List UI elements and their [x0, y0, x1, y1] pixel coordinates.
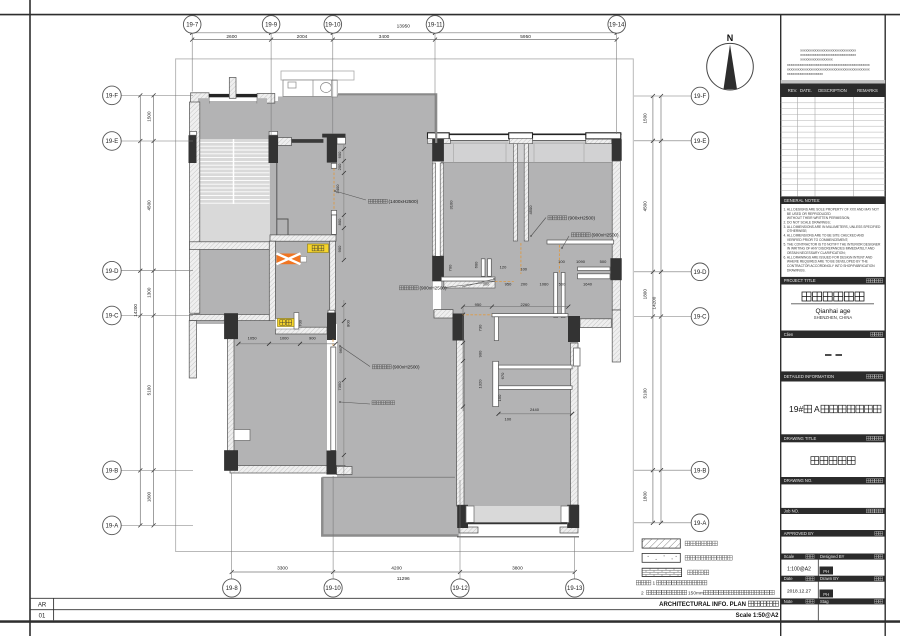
svg-text:Scale: Scale	[784, 554, 795, 559]
svg-text:(900xH2500): (900xH2500)	[420, 286, 448, 291]
svg-text:19-B: 19-B	[694, 468, 707, 474]
svg-text:800: 800	[345, 319, 350, 326]
svg-text:3800: 3800	[512, 566, 523, 572]
svg-text:19-C: 19-C	[105, 314, 119, 320]
svg-text:13950: 13950	[397, 24, 411, 30]
svg-text:WHERE REQUIRED ARE TO BE DEVEL: WHERE REQUIRED ARE TO BE DEVELOPED BY TH…	[787, 260, 869, 264]
svg-text:DRAWINGS.: DRAWINGS.	[787, 268, 806, 272]
svg-text:670: 670	[500, 372, 505, 379]
svg-text:OTHERWISE;: OTHERWISE;	[787, 229, 808, 233]
svg-text:Stag: Stag	[820, 599, 829, 604]
svg-text:11296: 11296	[397, 576, 410, 582]
svg-text:1500: 1500	[643, 113, 648, 124]
svg-text:2004: 2004	[297, 34, 308, 40]
svg-text:900: 900	[337, 245, 342, 252]
svg-text:19-11: 19-11	[428, 23, 444, 29]
svg-text:19-E: 19-E	[694, 139, 707, 145]
svg-text:Designed BY: Designed BY	[820, 554, 845, 559]
svg-text:2. DO NOT SCALE DRAWINGS;: 2. DO NOT SCALE DRAWINGS;	[784, 221, 831, 225]
svg-text:2440: 2440	[530, 407, 540, 412]
svg-text:500: 500	[559, 282, 566, 287]
svg-text:5100: 5100	[146, 385, 151, 396]
svg-text:(900xH2500): (900xH2500)	[568, 216, 596, 221]
svg-text:19-F: 19-F	[106, 94, 119, 100]
svg-text:SHENZHEN, CHINA: SHENZHEN, CHINA	[814, 315, 853, 320]
svg-text:500: 500	[600, 259, 607, 264]
svg-text:xxxxxxxxxxxxxxxxxxxxxxxxxxxxxx: xxxxxxxxxxxxxxxxxxxxxxxxxxxxxxxxxxxxxxxx…	[787, 63, 870, 67]
svg-text:(900xH2500): (900xH2500)	[592, 233, 620, 238]
svg-text:4500: 4500	[146, 200, 151, 211]
svg-text:900: 900	[309, 336, 316, 341]
svg-text:Scale 1:50@A2: Scale 1:50@A2	[736, 613, 780, 619]
svg-text:150: 150	[497, 394, 502, 401]
svg-text:19-E: 19-E	[106, 139, 119, 145]
svg-text:2260: 2260	[521, 302, 531, 307]
svg-text:1060: 1060	[540, 282, 550, 287]
svg-text:4500: 4500	[528, 205, 533, 215]
svg-text:19-F: 19-F	[694, 94, 707, 100]
svg-text:AR: AR	[38, 602, 47, 608]
svg-text:ARCHITECTURAL INFO. PLAN: ARCHITECTURAL INFO. PLAN	[659, 602, 746, 608]
svg-text:1: 1	[653, 581, 656, 587]
svg-text:19-A: 19-A	[694, 521, 707, 527]
svg-text:600: 600	[337, 151, 342, 158]
svg-text:1090: 1090	[576, 259, 586, 264]
svg-text:19-B: 19-B	[106, 469, 119, 475]
svg-text:A: A	[814, 404, 820, 414]
svg-text:1800: 1800	[643, 491, 648, 502]
svg-text:01: 01	[39, 614, 46, 620]
svg-text:Job NO.: Job NO.	[784, 509, 799, 514]
svg-text:3100: 3100	[448, 200, 453, 210]
svg-text:N: N	[727, 33, 734, 43]
svg-text:1800: 1800	[146, 491, 151, 502]
svg-text:4500: 4500	[643, 201, 648, 212]
svg-text:19-8: 19-8	[226, 586, 239, 592]
svg-text:PROJECT TITLE: PROJECT TITLE	[784, 278, 816, 283]
svg-text:DATE.: DATE.	[800, 88, 812, 93]
svg-text:950: 950	[505, 282, 512, 287]
svg-text:19-D: 19-D	[105, 269, 119, 275]
svg-text:200: 200	[521, 282, 528, 287]
svg-text:BE USED OR REPRODUCED: BE USED OR REPRODUCED	[787, 212, 832, 216]
svg-text:xxxxxxxxxxxxxxxxxx: xxxxxxxxxxxxxxxxxx	[800, 58, 833, 62]
svg-text:REV.: REV.	[788, 88, 797, 93]
svg-text:3300: 3300	[277, 566, 288, 572]
svg-text:Qianhai age: Qianhai age	[815, 308, 850, 315]
svg-text:PH: PH	[823, 569, 829, 574]
svg-text:700: 700	[298, 319, 303, 326]
svg-text:2018.12.27: 2018.12.27	[787, 589, 811, 595]
svg-text:PH: PH	[823, 592, 829, 597]
svg-text:DESCRIPTION: DESCRIPTION	[818, 88, 847, 93]
svg-text:Drawn BY: Drawn BY	[820, 576, 839, 581]
svg-text:19-14: 19-14	[609, 23, 625, 29]
svg-text:900: 900	[478, 350, 483, 357]
svg-text:19-9: 19-9	[265, 23, 278, 29]
svg-text:1:100@A2: 1:100@A2	[787, 567, 811, 573]
svg-text:Note: Note	[784, 599, 794, 604]
svg-text:(1400xH2500): (1400xH2500)	[389, 199, 419, 204]
svg-text:120: 120	[500, 265, 507, 270]
svg-text:19#: 19#	[789, 404, 803, 414]
svg-text:REMARKS: REMARKS	[857, 88, 878, 93]
svg-text:xxxxxxxxxxxxxxxxxxxx: xxxxxxxxxxxxxxxxxxxx	[787, 72, 823, 76]
svg-text:1000: 1000	[280, 336, 290, 341]
svg-text:7350: 7350	[337, 381, 342, 391]
svg-text:xxxxxxxxxxxxxxxxxxxxxxxxxxxxxx: xxxxxxxxxxxxxxxxxxxxxxxxxxxxxxx	[800, 53, 856, 57]
svg-text:5100: 5100	[643, 388, 648, 399]
svg-text:APPROVED BY: APPROVED BY	[784, 531, 814, 536]
svg-text:4200: 4200	[391, 566, 402, 572]
svg-text:1500: 1500	[146, 111, 151, 122]
svg-text:19-D: 19-D	[693, 270, 707, 276]
svg-text:150mm: 150mm	[688, 590, 704, 596]
svg-text:1800: 1800	[643, 289, 648, 300]
svg-text:5950: 5950	[520, 34, 531, 40]
svg-text:Date: Date	[784, 576, 794, 581]
svg-text:xxxxxxxxxxxxxxxxxxxxxxxxxxxxxx: xxxxxxxxxxxxxxxxxxxxxxxxxxxxxxxxxxxxxxxx…	[787, 68, 870, 72]
svg-text:1300: 1300	[146, 287, 151, 298]
svg-text:1050: 1050	[248, 336, 258, 341]
svg-text:730: 730	[478, 324, 483, 331]
svg-text:14200: 14200	[133, 304, 138, 317]
svg-text:14200: 14200	[652, 296, 657, 309]
svg-text:700: 700	[448, 264, 453, 271]
svg-text:950: 950	[475, 302, 482, 307]
svg-text:2: 2	[641, 590, 644, 596]
svg-text:3400: 3400	[379, 34, 390, 40]
svg-text:IN WRITING OF ANY DISCREPANCIE: IN WRITING OF ANY DISCREPANCIES IMMEDIAT…	[787, 247, 875, 251]
svg-text:800: 800	[337, 218, 342, 225]
svg-text:200: 200	[337, 163, 342, 170]
svg-text:19-10: 19-10	[325, 23, 341, 29]
svg-text:2600: 2600	[226, 34, 237, 40]
svg-text:DRAWING TITLE: DRAWING TITLE	[784, 436, 817, 441]
svg-text:960: 960	[338, 346, 343, 353]
svg-text:(900xH2500): (900xH2500)	[393, 365, 421, 370]
svg-text:DETAILED INFORMATION: DETAILED INFORMATION	[784, 374, 834, 379]
svg-text:19-10: 19-10	[325, 586, 341, 592]
svg-text:300: 300	[483, 282, 490, 287]
svg-text:19-12: 19-12	[452, 586, 468, 592]
svg-text:19-A: 19-A	[106, 524, 119, 530]
svg-text:xxxxxxxxxxxxxxxxxxxxxxxxxxxxxx: xxxxxxxxxxxxxxxxxxxxxxxxxxxxxxx	[800, 49, 856, 53]
svg-text:VERIFIED PRIOR TO COMMENCEMENT: VERIFIED PRIOR TO COMMENCEMENT;	[787, 238, 848, 242]
svg-text:100: 100	[558, 259, 565, 264]
svg-text:Clien: Clien	[784, 332, 794, 337]
svg-text:6. ALL DRAWINGS ARE ISSUED FOR: 6. ALL DRAWINGS ARE ISSUED FOR DESIGN IN…	[784, 255, 873, 259]
svg-text:1640: 1640	[583, 282, 593, 287]
svg-text:19-C: 19-C	[693, 315, 707, 321]
svg-text:600: 600	[474, 261, 479, 268]
svg-text:1320: 1320	[478, 379, 483, 389]
svg-text:100: 100	[520, 267, 527, 272]
svg-text:DRAWING NO.: DRAWING NO.	[784, 478, 813, 483]
svg-text:19-7: 19-7	[186, 23, 199, 29]
svg-text:19-13: 19-13	[567, 586, 583, 592]
svg-text:100: 100	[505, 417, 512, 422]
svg-text:GENERAL NOTES:: GENERAL NOTES:	[784, 198, 821, 203]
